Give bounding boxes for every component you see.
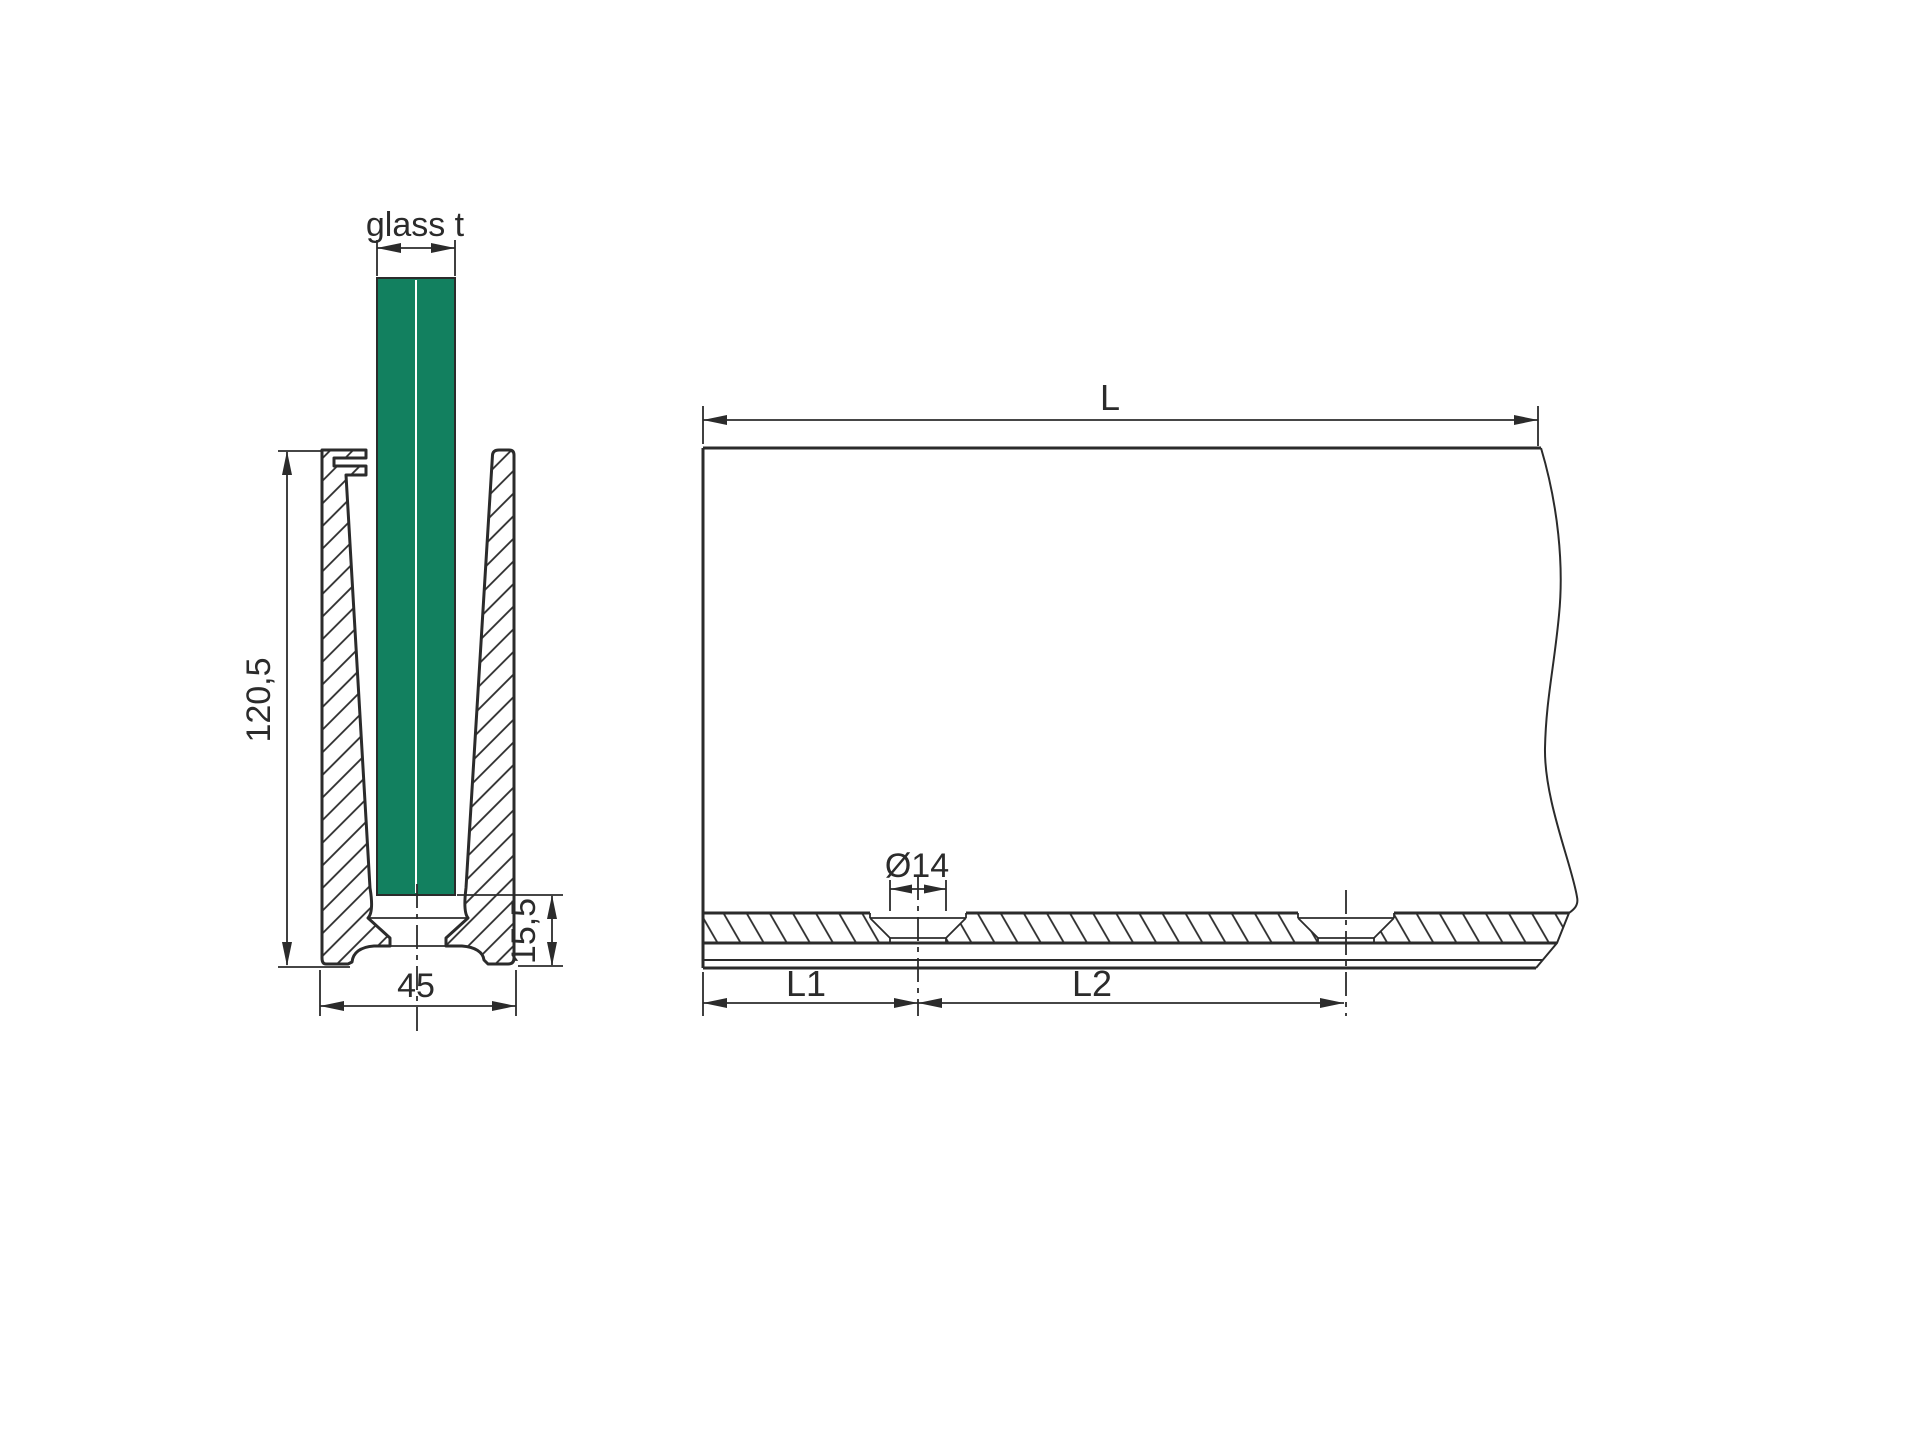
arrowhead <box>320 1001 344 1011</box>
dimension-glass-thickness: glass t <box>366 206 465 276</box>
side-elevation-view: L Ø14 L1 L2 <box>703 377 1577 1016</box>
arrowhead <box>1320 998 1344 1008</box>
arrowhead <box>703 998 727 1008</box>
break-line <box>1536 448 1577 968</box>
arrowhead <box>924 885 946 894</box>
dimension-profile-width: 45 <box>320 967 516 1016</box>
hole-offset-label: L1 <box>786 963 826 1004</box>
arrowhead <box>492 1001 516 1011</box>
arrowhead <box>547 942 557 966</box>
arrowhead <box>282 942 292 966</box>
arrowhead <box>282 451 292 475</box>
base-section-strip <box>703 913 1569 943</box>
cross-section-view: glass t 120,5 45 15,5 <box>240 206 563 1032</box>
arrowhead <box>431 243 455 253</box>
glass-thickness-label: glass t <box>366 206 465 244</box>
drawing-canvas: glass t 120,5 45 15,5 <box>0 0 1920 1440</box>
arrowhead <box>918 998 942 1008</box>
channel-profile-right-half <box>446 450 514 964</box>
side-view-outline <box>703 448 1577 968</box>
arrowhead <box>547 895 557 919</box>
dimension-length: L <box>703 377 1538 446</box>
arrowhead <box>894 998 918 1008</box>
dimension-hole-diameter: Ø14 <box>885 847 949 911</box>
arrowhead <box>703 415 727 425</box>
profile-width-label: 45 <box>397 967 435 1005</box>
arrowhead <box>1514 415 1538 425</box>
base-height-label: 15,5 <box>505 898 543 964</box>
length-label: L <box>1100 377 1120 418</box>
glass-panel <box>377 278 455 895</box>
profile-height-label: 120,5 <box>240 657 278 742</box>
arrowhead <box>890 885 912 894</box>
technical-drawing-page: glass t 120,5 45 15,5 <box>0 0 1920 1440</box>
hole-diameter-label: Ø14 <box>885 847 949 885</box>
dimension-hole-positions: L1 L2 <box>703 963 1344 1016</box>
hole-spacing-label: L2 <box>1072 963 1112 1004</box>
arrowhead <box>377 243 401 253</box>
